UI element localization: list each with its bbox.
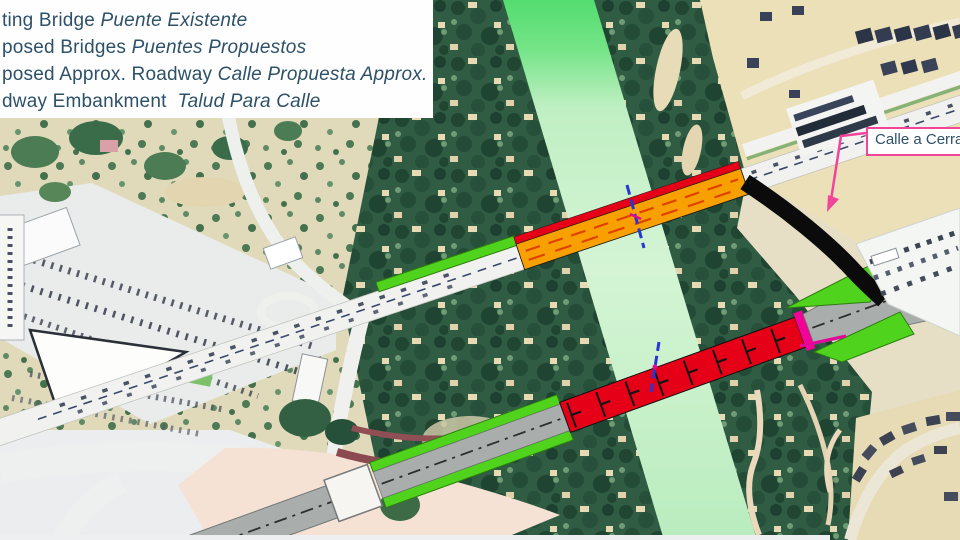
legend-label-es: Talud Para Calle (178, 91, 321, 112)
legend-label-en: posed Approx. Roadway (2, 64, 212, 85)
map-canvas: ting Bridge Puente Existente posed Bridg… (0, 0, 960, 540)
trees (279, 399, 331, 437)
vegetation (274, 121, 302, 141)
legend-label-es: Puentes Propuestos (132, 37, 307, 58)
house-roof (747, 58, 759, 68)
legend-label-es: Calle Propuesta Approx. (218, 64, 428, 85)
legend-item-existing-bridge: ting Bridge Puente Existente (2, 7, 433, 34)
house-roof (789, 90, 800, 98)
vegetation (11, 136, 59, 168)
legend-item-proposed-roadway: posed Approx. Roadway Calle Propuesta Ap… (2, 61, 433, 88)
house-roof (760, 12, 772, 21)
vegetation (144, 152, 186, 180)
house-roof (946, 412, 960, 421)
dirt-patch (165, 177, 245, 207)
trees (325, 419, 359, 445)
house-roof (792, 6, 804, 15)
house-roof (934, 446, 947, 454)
bottom-edge-strip (0, 535, 830, 540)
vegetation (39, 182, 71, 202)
legend-label-en: posed Bridges (2, 37, 126, 58)
house-roof (944, 492, 958, 501)
legend-item-proposed-bridges: posed Bridges Puentes Propuestos (2, 34, 433, 61)
legend-label-en: ting Bridge (2, 10, 95, 31)
callout-calle-a-cerrar: Calle a Cerrar (866, 127, 960, 156)
building (100, 140, 118, 152)
callout-label: Calle a Cerrar (875, 131, 960, 148)
map-legend: ting Bridge Puente Existente posed Bridg… (0, 0, 433, 118)
legend-item-roadway-embankment: dway Embankment Talud Para Calle (2, 88, 433, 115)
legend-label-en: dway Embankment (2, 91, 167, 112)
crossing-station-mark (653, 365, 658, 370)
legend-label-es: Puente Existente (101, 10, 248, 31)
